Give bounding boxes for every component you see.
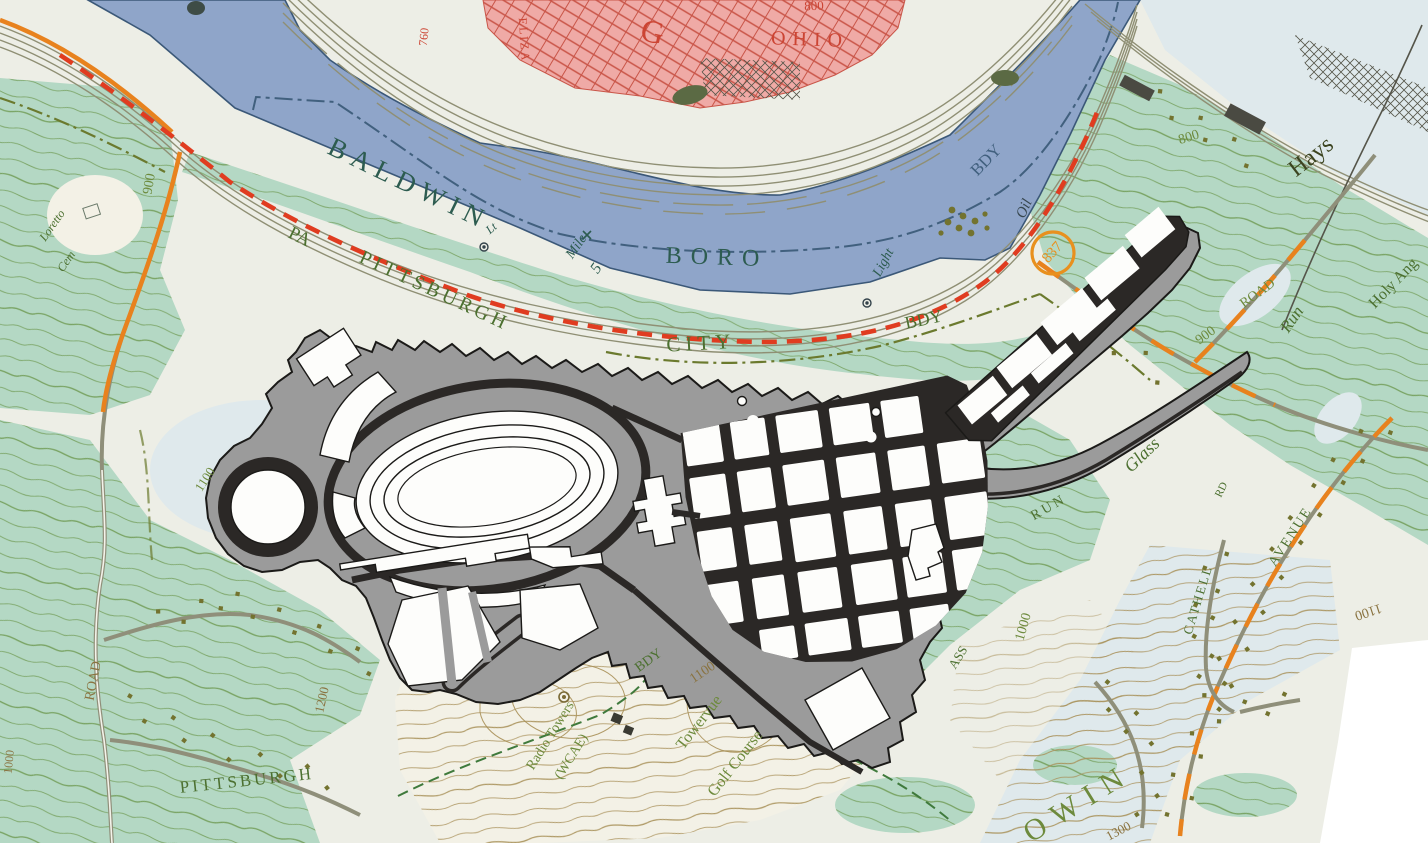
label-elev-760: 760 xyxy=(416,27,432,46)
house-dot xyxy=(1158,89,1163,94)
house-dot xyxy=(1112,351,1116,355)
city-block xyxy=(790,513,837,562)
city-block xyxy=(752,574,790,619)
house-dot xyxy=(181,620,185,624)
house-dot xyxy=(1171,772,1176,777)
house-dot xyxy=(1155,380,1160,385)
city-block xyxy=(843,506,888,555)
city-block xyxy=(775,410,823,453)
house-dot xyxy=(1198,115,1203,120)
house-dot xyxy=(250,614,255,619)
house-dot xyxy=(1189,796,1194,801)
house-dot xyxy=(1144,351,1148,355)
city-block xyxy=(737,467,777,512)
city-block xyxy=(782,459,829,505)
city-block xyxy=(697,527,738,572)
city-block xyxy=(851,559,898,605)
grid-circle-plaza xyxy=(747,415,759,427)
city-block xyxy=(880,396,923,438)
house-dot xyxy=(1198,754,1203,759)
city-block xyxy=(744,521,783,565)
city-block xyxy=(797,567,842,613)
house-dot xyxy=(218,606,223,611)
city-block xyxy=(858,611,903,648)
house-dot xyxy=(156,609,160,613)
label-red-800: 800 xyxy=(804,0,824,13)
house-dot xyxy=(1190,731,1195,736)
label-city: CITY xyxy=(666,329,736,357)
topo-map-screenshot: BALDWIN BORO PA PITTSBURGH CITY BDY BDY … xyxy=(0,0,1428,843)
label-boro: BORO xyxy=(665,243,769,273)
house-dot xyxy=(235,592,240,597)
house-dot xyxy=(1202,693,1206,697)
grid-circle-plaza2 xyxy=(866,432,877,443)
house-dot xyxy=(199,599,204,604)
label-ohio: OHIO xyxy=(771,27,850,52)
house-dot xyxy=(1169,116,1174,121)
city-block xyxy=(937,438,986,484)
city-block xyxy=(836,452,881,498)
railyard-crosshatch xyxy=(700,58,800,100)
city-block xyxy=(804,618,851,656)
traffic-circle xyxy=(218,457,318,557)
contour-1000-left: 1000 xyxy=(1,749,17,774)
topo-map-canvas: BALDWIN BORO PA PITTSBURGH CITY BDY BDY … xyxy=(0,0,1428,843)
house-dot xyxy=(1217,719,1221,723)
city-block xyxy=(887,445,930,490)
